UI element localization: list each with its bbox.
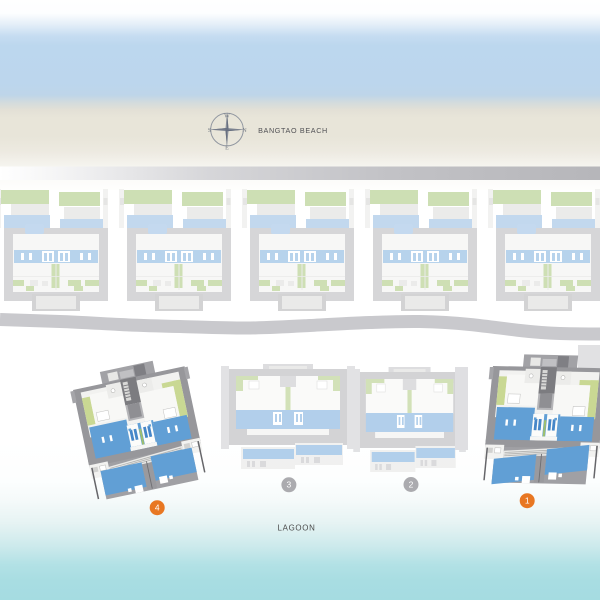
svg-text:3: 3 [287,480,292,490]
svg-text:2: 2 [409,479,414,489]
svg-text:1: 1 [525,496,530,506]
svg-text:BANGTAO BEACH: BANGTAO BEACH [258,126,328,135]
svg-text:4: 4 [155,503,160,513]
svg-text:W: W [224,113,230,119]
svg-text:N: N [242,128,247,134]
svg-text:S: S [208,128,211,134]
svg-text:LAGOON: LAGOON [278,524,316,533]
svg-text:E: E [225,145,229,151]
